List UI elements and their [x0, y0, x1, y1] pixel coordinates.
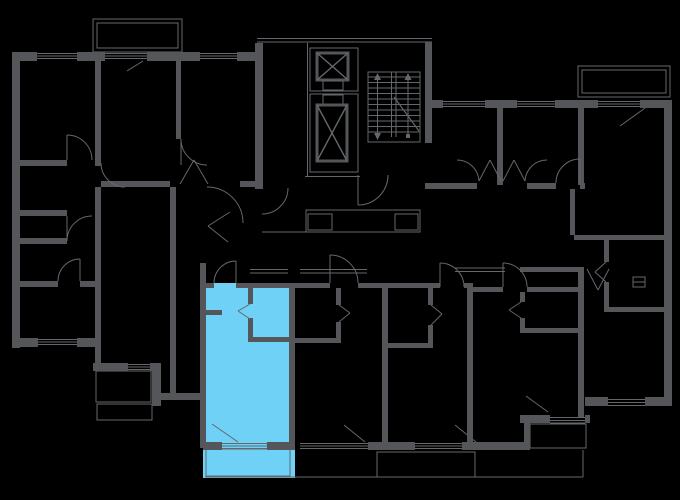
walls — [12, 42, 672, 450]
elevator-upper — [310, 48, 358, 91]
door-swings — [58, 135, 609, 325]
floor-plan-viewport — [0, 0, 680, 500]
windows — [37, 54, 645, 449]
elevator-stair-core — [257, 39, 432, 233]
floor-plan — [0, 0, 680, 500]
elevator-lower — [310, 94, 358, 172]
stair-treads — [368, 77, 420, 132]
entrance-vestibule — [262, 175, 420, 232]
staircase — [368, 72, 420, 142]
